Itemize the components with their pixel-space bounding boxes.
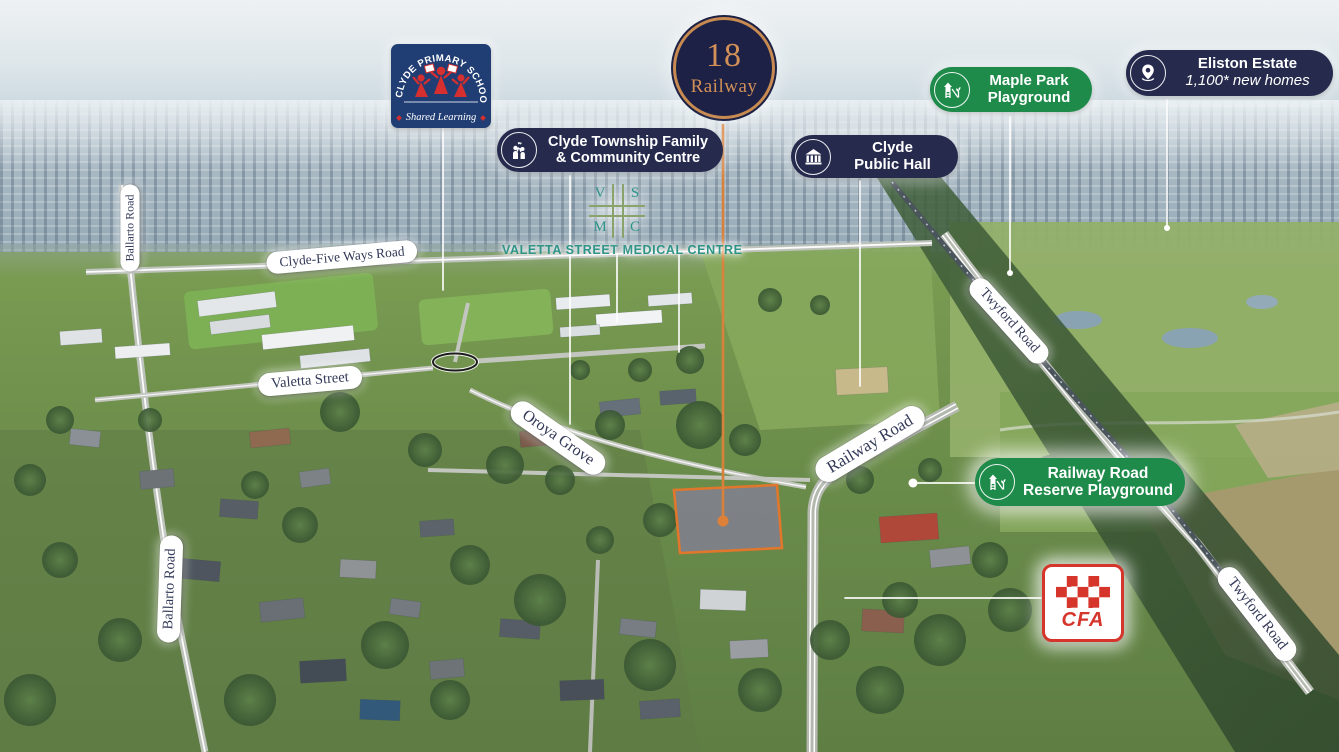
clyde-primary-school-logo: CLYDE PRIMARY SCHOOL Shared Learning [391, 44, 491, 128]
playground-icon [979, 464, 1015, 500]
vsmc-cross-icon: V S M C [589, 184, 645, 238]
cfa-checker-icon [1056, 576, 1110, 608]
railway-reserve-label: Railway Road Reserve Playground [1019, 465, 1185, 500]
badge-number: 18 [706, 39, 742, 73]
aerial-map: 18 Railway CLYDE PRIMARY SCHOOL [0, 0, 1339, 752]
playground-icon [934, 72, 970, 108]
road-label-ballarto-top: Ballarto Road [121, 185, 140, 272]
eliston-estate-label: Eliston Estate 1,100* new homes [1170, 56, 1333, 90]
vsmc-letter-v: V [591, 185, 609, 202]
red-diamond-icon [480, 115, 486, 121]
community-centre-badge: Clyde Township Family & Community Centre [497, 128, 723, 172]
road-label-ballarto-bottom: Ballarto Road [157, 535, 184, 643]
school-children-figures [413, 67, 469, 97]
vsmc-letter-s: S [626, 185, 644, 202]
medical-centre-logo: V S M C VALETTA STREET MEDICAL CENTRE [502, 184, 732, 257]
school-logo-graphic: CLYDE PRIMARY SCHOOL [391, 44, 491, 106]
red-diamond-icon [396, 115, 402, 121]
vsmc-letter-m: M [591, 219, 609, 236]
badge-name: Railway [691, 76, 758, 98]
medical-centre-label: VALETTA STREET MEDICAL CENTRE [502, 243, 732, 257]
eliston-estate-badge: Eliston Estate 1,100* new homes [1126, 50, 1333, 96]
property-badge-18-railway: 18 Railway [673, 17, 775, 119]
school-tagline-row: Shared Learning [391, 112, 491, 123]
map-overlay-graphics [0, 0, 1339, 752]
hall-building-icon [795, 139, 831, 175]
cfa-label: CFA [1062, 610, 1105, 630]
railway-reserve-badge: Railway Road Reserve Playground [975, 458, 1185, 506]
vsmc-letter-c: C [626, 219, 644, 236]
public-hall-badge: Clyde Public Hall [791, 135, 958, 178]
school-tagline: Shared Learning [406, 112, 477, 123]
maple-park-badge: Maple Park Playground [930, 67, 1092, 112]
maple-park-label: Maple Park Playground [974, 73, 1092, 107]
location-pin-icon [1130, 55, 1166, 91]
cfa-station-logo: CFA [1042, 564, 1124, 642]
community-centre-label: Clyde Township Family & Community Centre [541, 134, 723, 167]
public-hall-label: Clyde Public Hall [835, 140, 958, 174]
family-high-five-icon [501, 132, 537, 168]
